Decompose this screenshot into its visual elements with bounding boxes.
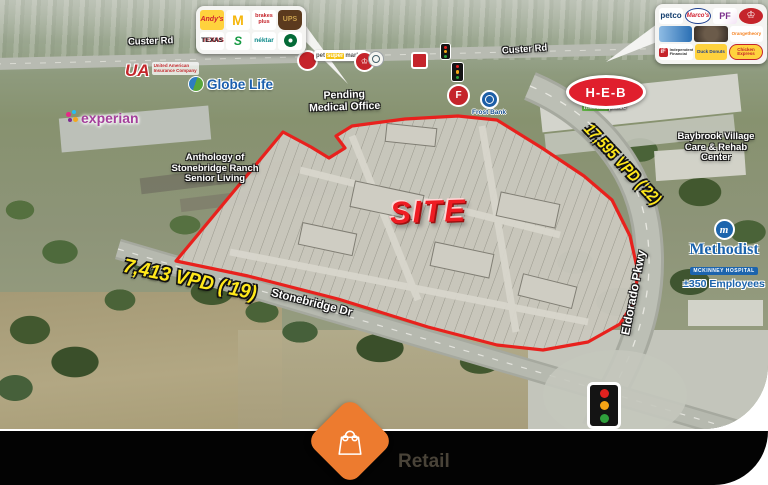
- panel-right-row1: petco Marco's PF ♔: [659, 8, 763, 24]
- andys-logo: Andy's: [200, 10, 224, 30]
- pending-medical-office-label: Pending Medical Office: [292, 88, 398, 115]
- marcos-pizza-logo: Marco's: [685, 8, 711, 24]
- experian-dots-icon: [66, 110, 78, 126]
- red-f-circle-logo: F: [447, 84, 470, 107]
- map-graphics: [0, 0, 768, 429]
- tenant-logo-panel-left: Andy's M brakes plus UPS TEXAS S néktar: [196, 6, 306, 54]
- independent-financial-mark: iF: [659, 48, 668, 57]
- pet-word: pet: [316, 53, 325, 59]
- frost-bank-wordmark: Frost Bank: [468, 109, 510, 116]
- retail-category-pin[interactable]: [305, 396, 395, 485]
- anthology-label: Anthology of Stonebridge Ranch Senior Li…: [152, 153, 278, 185]
- ua-line2: Insurance Company: [154, 68, 197, 73]
- smoothie-king-glyph: ♔: [747, 11, 756, 21]
- mcdonalds-logo: M: [226, 10, 250, 30]
- ups-logo: UPS: [278, 10, 302, 30]
- traffic-light-icon: [587, 382, 621, 429]
- custer-rd-label-left: Custer Rd: [128, 36, 174, 48]
- starbucks-logo: [278, 32, 302, 51]
- experian-wordmark: experian: [81, 110, 139, 126]
- baybrook-line3: Center: [666, 153, 766, 164]
- chicken-express-glyph: Chicken Express: [730, 48, 762, 57]
- duck-donuts-glyph: Duck Donuts: [697, 50, 725, 55]
- orangetheory-glyph: Orangetheory: [732, 32, 762, 37]
- ua-line1: United American: [154, 63, 190, 68]
- dark-brand-logo: [694, 26, 727, 42]
- methodist-employees: ±350 Employees: [680, 278, 768, 290]
- site-label: SITE: [389, 193, 467, 232]
- traffic-light-icon: [440, 43, 451, 60]
- nektar-logo: néktar: [252, 32, 276, 51]
- panel-right-row2: Orangetheory: [659, 26, 763, 42]
- united-american-logo: UA United American Insurance Company: [125, 62, 199, 79]
- duck-donuts-logo: Duck Donuts: [695, 44, 727, 60]
- independent-financial-text: Independent Financial: [670, 48, 693, 56]
- methodist-hospital-logo: m Methodist MCKINNEY HOSPITAL ±350 Emplo…: [680, 219, 768, 290]
- aerial-retail-map: Custer Rd Custer Rd Stonebridge Dr Eldor…: [0, 0, 768, 485]
- subway-logo: S: [226, 32, 250, 51]
- petco-glyph: petco: [660, 12, 681, 20]
- ups-glyph: UPS: [283, 16, 297, 23]
- methodist-icon: m: [714, 219, 735, 240]
- globe-life-wordmark: Globe Life: [207, 77, 273, 92]
- petco-logo: petco: [659, 8, 683, 24]
- methodist-subtitle: MCKINNEY HOSPITAL: [690, 267, 757, 275]
- category-label: Retail: [398, 451, 450, 473]
- mcdonalds-glyph: M: [232, 13, 244, 27]
- ua-text: United American Insurance Company: [152, 62, 199, 75]
- traffic-light-icon: [451, 62, 464, 82]
- baybrook-label: Baybrook Village Care & Rehab Center: [666, 132, 766, 164]
- chicken-express-logo: Chicken Express: [729, 44, 763, 60]
- brakes-plus-glyph: brakes plus: [252, 14, 276, 25]
- methodist-wordmark: Methodist: [680, 241, 768, 259]
- nektar-glyph: néktar: [254, 38, 274, 45]
- independent-financial-logo: iF Independent Financial: [659, 44, 693, 60]
- shopping-bag-icon: [335, 424, 365, 458]
- tenant-logo-panel-right: petco Marco's PF ♔ Orangetheory iF Indep…: [655, 4, 767, 64]
- globe-life-logo: Globe Life: [188, 76, 273, 92]
- super-word: super: [326, 53, 344, 59]
- frost-bank-logo: Frost Bank: [468, 90, 510, 116]
- blue-brand-logo: [659, 26, 692, 42]
- panel-right-tail: [606, 24, 657, 62]
- ua-mark: UA: [125, 62, 150, 79]
- frost-bank-icon: [480, 90, 499, 109]
- planet-fitness-glyph: PF: [719, 12, 731, 21]
- andys-glyph: Andy's: [200, 16, 223, 23]
- subway-glyph: S: [234, 35, 242, 47]
- aerial-photo: Custer Rd Custer Rd Stonebridge Dr Eldor…: [0, 0, 768, 429]
- panel-right-row3: iF Independent Financial Duck Donuts Chi…: [659, 44, 763, 60]
- orangetheory-logo: Orangetheory: [730, 26, 763, 42]
- texas-roadhouse-glyph: TEXAS: [201, 38, 223, 45]
- red-square-logo: [411, 52, 428, 69]
- texas-roadhouse-logo: TEXAS: [200, 32, 224, 51]
- brakes-plus-logo: brakes plus: [252, 10, 276, 30]
- smoothie-king-logo: ♔: [739, 8, 763, 24]
- heb-logo: H-E-B: [566, 75, 646, 109]
- marcos-glyph: Marco's: [687, 13, 709, 19]
- anthology-line3: Senior Living: [152, 174, 278, 185]
- first-watch-circle-logo: [368, 51, 384, 67]
- experian-logo: experian: [66, 110, 139, 126]
- planet-fitness-logo: PF: [713, 8, 737, 24]
